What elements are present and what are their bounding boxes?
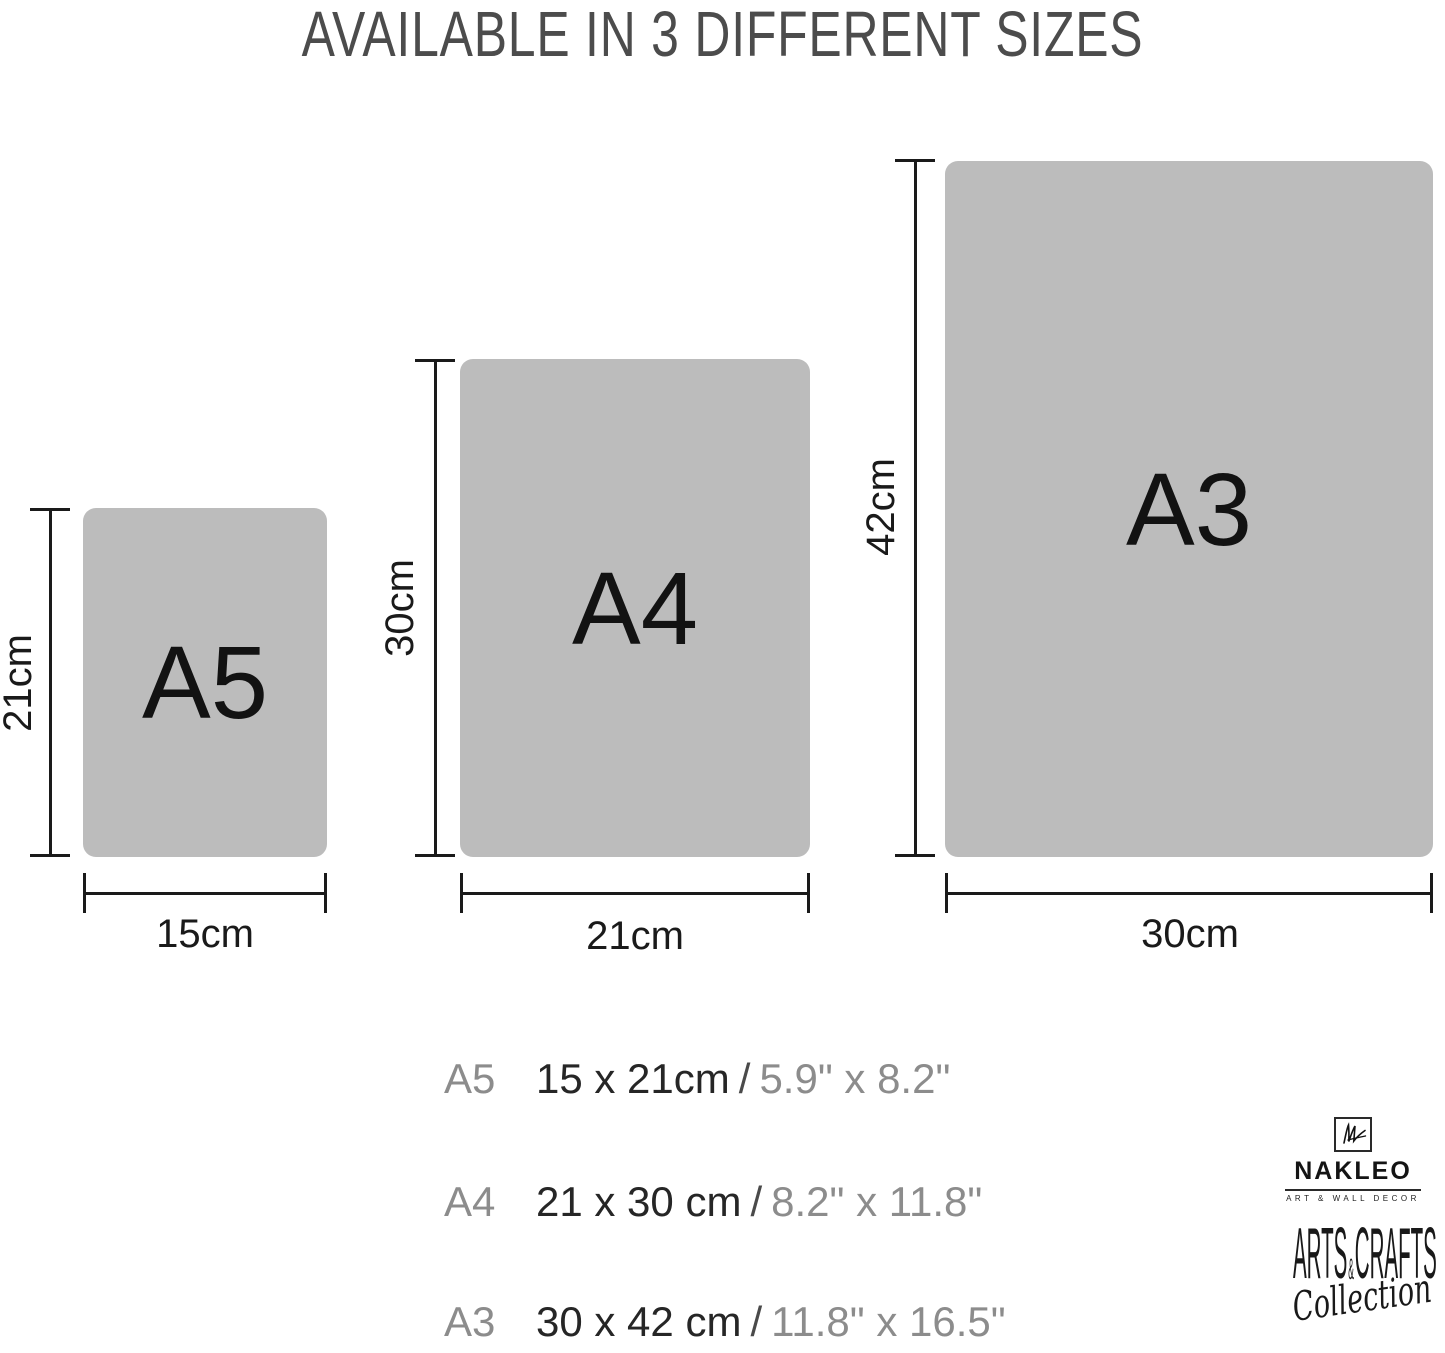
dimension-line	[83, 892, 327, 895]
width-dimension-a5	[83, 873, 327, 913]
brand-tagline: ART & WALL DECOR	[1285, 1195, 1421, 1203]
legend-separator: /	[750, 1181, 762, 1223]
legend-code: A3	[444, 1301, 536, 1343]
paper-a3-label: A3	[1126, 458, 1252, 561]
size-chart-infographic: AVAILABLE IN 3 DIFFERENT SIZES A5 21cm 1…	[0, 0, 1445, 1353]
legend-metric: 15 x 21cm	[536, 1058, 730, 1100]
dimension-line	[49, 508, 52, 857]
dimension-line	[914, 159, 917, 857]
dimension-cap	[415, 854, 455, 857]
dimension-line	[434, 359, 437, 857]
height-label-a4: 30cm	[380, 559, 420, 657]
nakleo-monogram-icon	[1334, 1117, 1372, 1152]
paper-a4-label: A4	[572, 557, 698, 660]
dimension-cap	[895, 854, 935, 857]
legend-code: A5	[444, 1058, 536, 1100]
dimension-tick	[324, 873, 327, 913]
legend-imperial: 11.8" x 16.5"	[771, 1301, 1006, 1343]
width-label-a3: 30cm	[1141, 914, 1239, 954]
width-dimension-a3	[945, 873, 1433, 913]
legend-row-a4: A4 21 x 30 cm / 8.2" x 11.8"	[444, 1181, 982, 1223]
legend-metric: 30 x 42 cm	[536, 1301, 741, 1343]
collection-script: Collection	[1290, 1276, 1382, 1328]
dimension-tick	[807, 873, 810, 913]
height-label-a5: 21cm	[0, 634, 38, 732]
width-dimension-a4	[460, 873, 810, 913]
paper-a5: A5	[83, 508, 327, 857]
legend-separator: /	[750, 1301, 762, 1343]
legend-row-a5: A5 15 x 21cm / 5.9" x 8.2"	[444, 1058, 950, 1100]
collection-wordmark: ARTS & CRAFTS	[1293, 1227, 1329, 1282]
brand-divider	[1285, 1189, 1421, 1191]
brand-block: NAKLEO ART & WALL DECOR ARTS & CRAFTS Co…	[1285, 1117, 1421, 1328]
legend-imperial: 8.2" x 11.8"	[771, 1181, 982, 1223]
legend-metric: 21 x 30 cm	[536, 1181, 741, 1223]
height-label-a3: 42cm	[861, 458, 901, 556]
width-label-a4: 21cm	[586, 916, 684, 956]
collection-word1: ARTS	[1293, 1227, 1347, 1282]
legend-imperial: 5.9" x 8.2"	[759, 1058, 950, 1100]
width-label-a5: 15cm	[156, 914, 254, 954]
dimension-cap	[30, 854, 70, 857]
dimension-tick	[1430, 873, 1433, 913]
legend-code: A4	[444, 1181, 536, 1223]
dimension-line	[945, 892, 1433, 895]
legend-separator: /	[739, 1058, 751, 1100]
dimension-line	[460, 892, 810, 895]
brand-name: NAKLEO	[1285, 1159, 1421, 1184]
paper-a4: A4	[460, 359, 810, 857]
paper-a5-label: A5	[142, 631, 268, 734]
paper-a3: A3	[945, 161, 1433, 857]
page-title: AVAILABLE IN 3 DIFFERENT SIZES	[159, 2, 1286, 66]
legend-row-a3: A3 30 x 42 cm / 11.8" x 16.5"	[444, 1301, 1006, 1343]
